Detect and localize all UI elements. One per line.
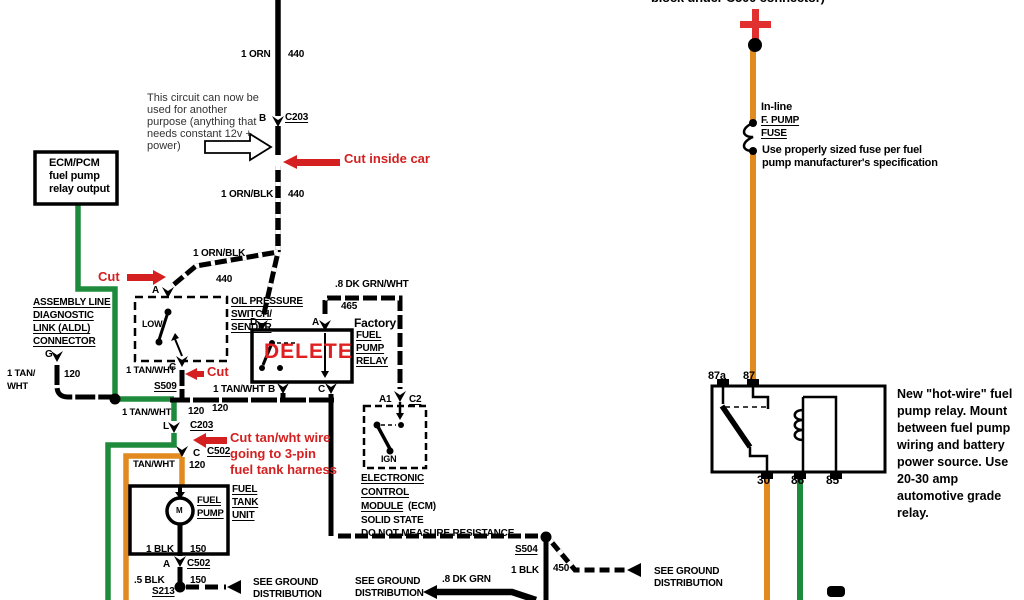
factory-relay-title: PUMP xyxy=(356,343,384,355)
wire-gauge-label: WHT xyxy=(7,382,28,393)
see-ground-label: SEE GROUND xyxy=(654,566,719,578)
reuse-note-line: purpose (anything that xyxy=(147,116,256,129)
relay-note-line: power source. Use xyxy=(897,455,1008,469)
circuit-number-label: 120 xyxy=(212,403,228,415)
connector-c203-b xyxy=(272,116,284,127)
relay-note-line: between fuel pump xyxy=(897,421,1010,435)
splice-s213 xyxy=(175,582,186,593)
distribution-label: DISTRIBUTION xyxy=(654,578,723,590)
relay-note-line: wiring and battery xyxy=(897,438,1005,452)
low-label: LOW xyxy=(142,319,162,329)
inline-fuse-icon xyxy=(744,119,757,155)
wire-gauge-label: 1 ORN xyxy=(241,49,271,61)
terminal-label-30: 30 xyxy=(757,474,770,488)
wiring-diagram: 1 ORN 440 B C203 This circuit can now be… xyxy=(0,0,1024,600)
fuel-tank-unit-label: FUEL xyxy=(232,484,257,496)
ground-arrow-icon xyxy=(227,580,241,594)
relay-note-line: automotive grade xyxy=(897,489,1001,503)
pin-label: B xyxy=(268,384,275,396)
reuse-note-line: power) xyxy=(147,140,181,153)
circuit-number-label: 440 xyxy=(288,49,304,61)
ecm-title: CONTROL xyxy=(361,487,409,499)
circuit-number-label: 120 xyxy=(188,406,204,418)
wire-gauge-label: 1 BLK xyxy=(146,544,174,556)
pin-label: L xyxy=(163,421,169,433)
connector-label: C203 xyxy=(285,112,308,124)
ecm-note: SOLID STATE xyxy=(361,515,423,527)
ecm-title: MODULE xyxy=(361,501,403,513)
new-relay-internals xyxy=(717,379,842,479)
fuel-pump-label: PUMP xyxy=(197,509,224,520)
terminal-label-87a: 87a xyxy=(708,370,726,383)
connector-c203-l xyxy=(168,422,180,433)
reuse-note-line: used for another xyxy=(147,104,227,117)
fuel-tank-unit-label: TANK xyxy=(232,497,258,509)
cut-label: Cut xyxy=(207,365,229,380)
pin-label: A1 xyxy=(379,394,391,406)
fuel-tank-unit-label: UNIT xyxy=(232,510,255,522)
wire-gauge-label: .8 DK GRN xyxy=(442,574,491,586)
wire-gauge-label: 1 TAN/WHT xyxy=(213,384,265,396)
circuit-number-label: 450 xyxy=(553,563,569,575)
circuit-number-label: 440 xyxy=(288,189,304,201)
ecm-internals xyxy=(374,402,405,455)
cut-inside-car-label: Cut inside car xyxy=(344,152,430,167)
factory-relay-title: FUEL xyxy=(356,330,381,342)
reuse-note-line: This circuit can now be xyxy=(147,92,259,105)
inline-fuse-label: In-line xyxy=(761,101,792,114)
cut-arrow-icon xyxy=(185,368,204,380)
oil-switch-internals xyxy=(156,309,183,357)
wire-gauge-label: 1 ORN/BLK xyxy=(193,248,245,260)
terminal-label-86: 86 xyxy=(791,474,804,488)
circuit-number-label: 120 xyxy=(189,460,205,472)
connector-c502-a xyxy=(174,556,186,567)
inline-fuse-label: FUSE xyxy=(761,128,787,140)
motor-m-label: M xyxy=(176,506,182,515)
splice-label: S509 xyxy=(154,381,177,393)
ground-arrow-icon xyxy=(423,585,437,599)
cut-note-line: fuel tank harness xyxy=(230,463,337,478)
pin-label: C xyxy=(318,384,325,396)
ign-label: IGN xyxy=(381,454,396,464)
see-ground-label: SEE GROUND xyxy=(253,577,318,589)
pin-label: A xyxy=(152,285,159,297)
pin-label: A xyxy=(312,317,319,329)
aldl-title: ASSEMBLY LINE xyxy=(33,297,110,309)
splice-s504 xyxy=(541,532,552,543)
cut-note-line: going to 3-pin xyxy=(230,447,316,462)
ecm-title-suffix: (ECM) xyxy=(408,501,436,513)
distribution-label: DISTRIBUTION xyxy=(253,589,322,600)
connector-label: C502 xyxy=(207,446,230,458)
aldl-title: CONNECTOR xyxy=(33,336,95,348)
pin-label: D xyxy=(250,317,257,329)
pin-label: B xyxy=(259,113,266,125)
pin-label: C xyxy=(193,448,200,460)
wire-gauge-label: 1 TAN/ xyxy=(7,369,35,380)
circuit-number-label: 465 xyxy=(341,301,357,313)
inline-fuse-label: F. PUMP xyxy=(761,115,799,127)
factory-relay-title: RELAY xyxy=(356,356,388,368)
circuit-number-label: 150 xyxy=(190,575,206,587)
connector-label: C203 xyxy=(190,420,213,432)
circuit-number-label: 440 xyxy=(216,274,232,286)
relay-note-line: New "hot-wire" fuel xyxy=(897,387,1012,401)
connector-relay-b xyxy=(277,383,289,394)
splice-label: S213 xyxy=(152,586,175,598)
cut-arrow-icon xyxy=(127,270,166,285)
circuit-number-label: 150 xyxy=(190,544,206,556)
wire-gauge-label: 1 ORN/BLK xyxy=(221,189,273,201)
cut-note-line: Cut tan/wht wire xyxy=(230,431,330,446)
delete-label: DELETE xyxy=(264,340,353,364)
wire-gauge-label: .5 BLK xyxy=(134,575,164,587)
ecm-pcm-box-label: fuel pump xyxy=(49,170,100,183)
ground-arrow-icon xyxy=(627,563,641,577)
reuse-note-line: needs constant 12v + xyxy=(147,128,252,141)
ecm-pcm-box-label: relay output xyxy=(49,183,110,196)
fuse-note-line: pump manufacturer's specification xyxy=(762,157,938,170)
ecm-pcm-box-label: ECM/PCM xyxy=(49,157,100,170)
circuit-number-label: 120 xyxy=(64,369,80,381)
wire-gauge-label: 1 BLK xyxy=(511,565,539,577)
relay-note-line: 20-30 amp xyxy=(897,472,958,486)
relay-note-line: relay. xyxy=(897,506,929,520)
splice-junction xyxy=(110,394,121,405)
battery-positive-icon xyxy=(740,9,771,52)
pin-label: G xyxy=(45,349,53,361)
distribution-label: DISTRIBUTION xyxy=(355,588,424,600)
wiring-diagram-svg xyxy=(0,0,1024,600)
connector-label: C2 xyxy=(409,394,421,406)
see-ground-label: SEE GROUND xyxy=(355,576,420,588)
terminal-label-85: 85 xyxy=(826,474,839,488)
ecm-note: DO NOT MEASURE RESISTANCE xyxy=(361,528,514,540)
wire-gauge-label: TAN/WHT xyxy=(133,460,175,471)
wire-gauge-label: 1 TAN/WHT xyxy=(122,408,171,419)
connector-ecm-c2 xyxy=(394,391,406,402)
splice-label: S504 xyxy=(515,544,538,556)
aldl-title: DIAGNOSTIC xyxy=(33,310,94,322)
wire-dkgrn-bottom xyxy=(423,585,536,600)
ground-terminal xyxy=(827,586,845,597)
fuse-note-line: Use properly sized fuse per fuel xyxy=(762,144,922,157)
oil-switch-title: OIL PRESSURE xyxy=(231,296,303,308)
c500-note: block under C500 connector) xyxy=(651,0,825,6)
ecm-title: ELECTRONIC xyxy=(361,473,424,485)
cut-label: Cut xyxy=(98,270,120,285)
fuel-pump-label: FUEL xyxy=(197,496,221,507)
connector-label: C502 xyxy=(187,558,210,570)
aldl-title: LINK (ALDL) xyxy=(33,323,90,335)
cut-inside-car-arrow-icon xyxy=(283,155,340,169)
wire-gauge-label: 1 TAN/WHT xyxy=(126,366,175,377)
relay-switch-arm xyxy=(722,406,750,447)
relay-note-line: pump relay. Mount xyxy=(897,404,1007,418)
pin-label: A xyxy=(163,559,170,571)
terminal-label-87: 87 xyxy=(743,370,755,383)
wire-gauge-label: .8 DK GRN/WHT xyxy=(335,279,409,291)
connector-relay-c xyxy=(325,383,337,394)
factory-caption: Factory xyxy=(354,317,396,331)
